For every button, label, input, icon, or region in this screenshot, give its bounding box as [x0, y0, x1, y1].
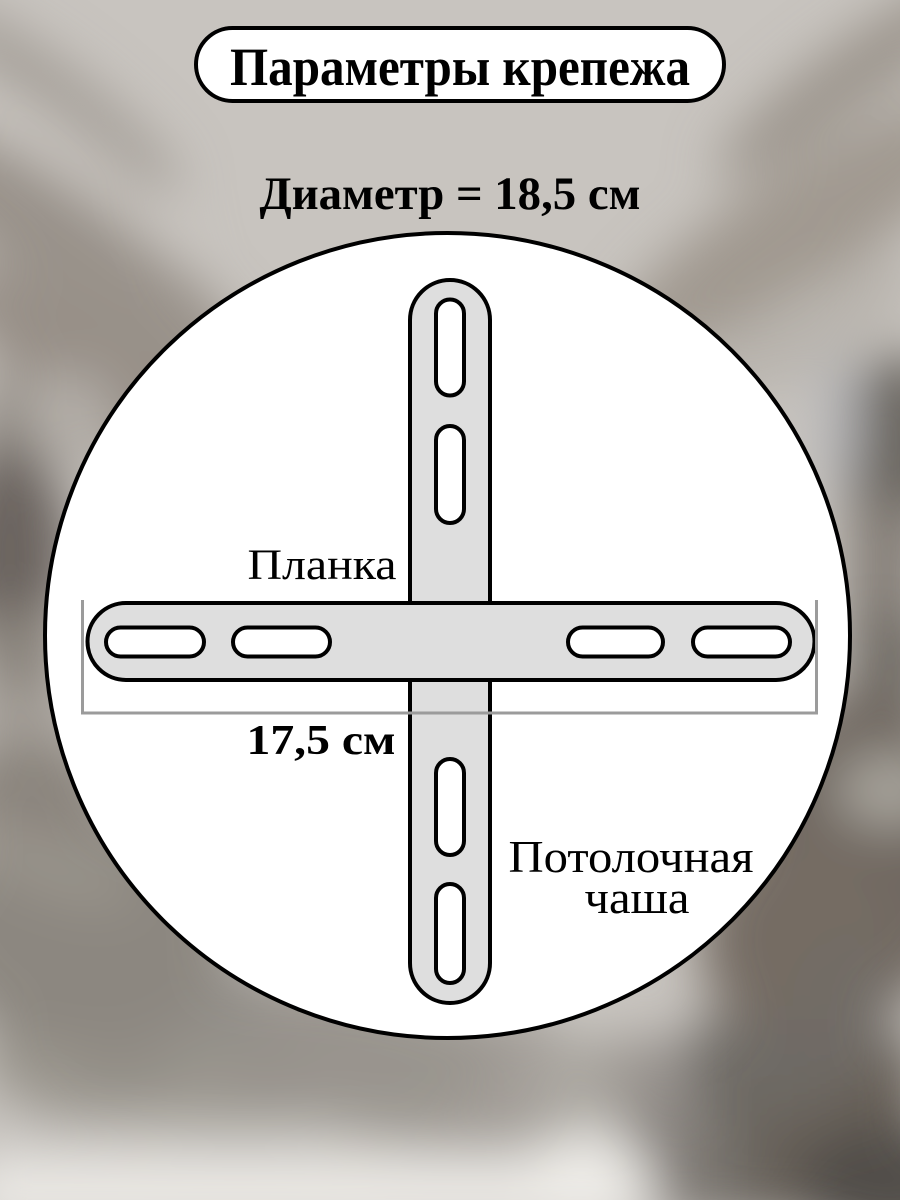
svg-text:17,5 см: 17,5 см [247, 718, 396, 764]
svg-text:Диаметр = 18,5 см: Диаметр = 18,5 см [260, 168, 641, 220]
svg-text:Параметры крепежа: Параметры крепежа [230, 37, 690, 97]
svg-text:Планка: Планка [248, 542, 397, 589]
svg-text:чаша: чаша [585, 872, 690, 923]
